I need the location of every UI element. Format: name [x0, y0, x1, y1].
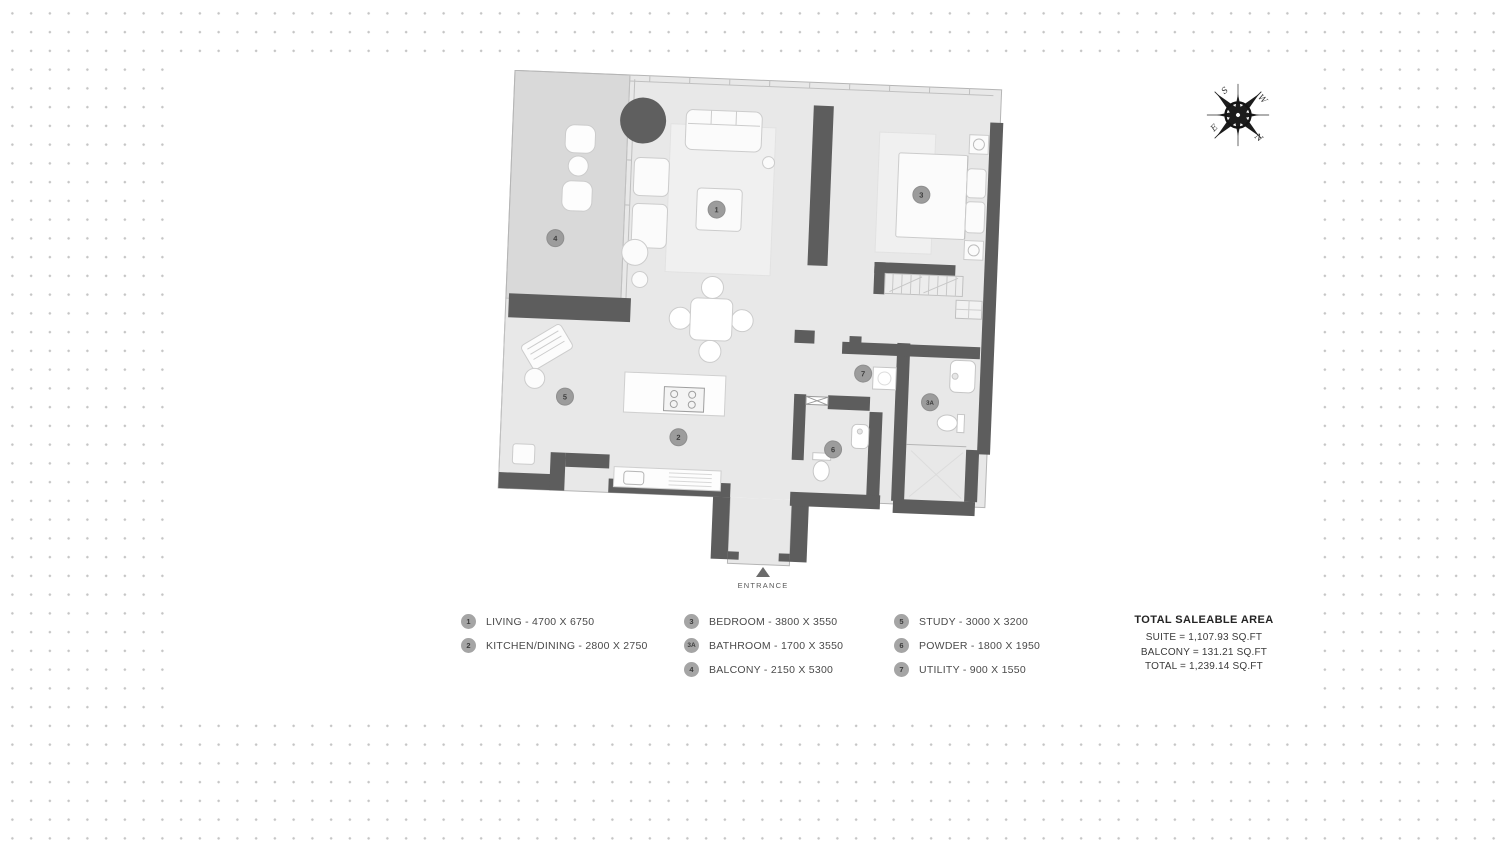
stool-icon	[524, 368, 545, 389]
room-badge-bathroom: 3A	[921, 393, 939, 411]
nightstand-icon	[969, 135, 989, 155]
toilet-tank-icon	[957, 414, 965, 432]
svg-text:1: 1	[714, 205, 719, 214]
legend-label: KITCHEN/DINING - 2800 X 2750	[486, 640, 648, 652]
dining-chair-icon	[669, 307, 692, 330]
legend-label: BATHROOM - 1700 X 3550	[709, 640, 843, 652]
stool-icon	[631, 271, 648, 288]
legend-item-study: 5 STUDY - 3000 X 3200	[894, 614, 1040, 629]
nightstand-icon	[964, 241, 984, 261]
wall-entrance-right	[790, 500, 809, 563]
compass-n-label: N	[1251, 131, 1264, 144]
dining-table-icon	[689, 298, 733, 342]
legend-column-3: 5 STUDY - 3000 X 3200 6 POWDER - 1800 X …	[894, 614, 1040, 677]
legend-item-living: 1 LIVING - 4700 X 6750	[461, 614, 648, 629]
washer-icon	[873, 367, 897, 390]
compass-s-label: S	[1220, 85, 1231, 97]
room-badge-balcony: 4	[546, 229, 564, 247]
room-badge-living: 1	[708, 201, 726, 219]
toilet-icon	[813, 461, 830, 482]
armchair-icon	[633, 157, 669, 196]
compass-rose: S W E N	[1203, 80, 1273, 150]
side-table-icon	[621, 239, 648, 266]
svg-text:3: 3	[919, 190, 924, 199]
legend-label: BEDROOM - 3800 X 3550	[709, 616, 837, 628]
plant-icon	[762, 156, 774, 168]
legend-label: BALCONY - 2150 X 5300	[709, 664, 833, 676]
legend-badge: 7	[894, 662, 909, 677]
legend-item-bathroom: 3A BATHROOM - 1700 X 3550	[684, 638, 843, 653]
room-badge-kitchen: 2	[670, 428, 688, 446]
compass-e-label: E	[1208, 122, 1221, 135]
legend-badge: 4	[684, 662, 699, 677]
basin-icon	[851, 424, 869, 449]
legend-column-1: 1 LIVING - 4700 X 6750 2 KITCHEN/DINING …	[461, 614, 648, 653]
room-badge-study: 5	[556, 388, 574, 406]
svg-text:3A: 3A	[926, 400, 935, 407]
room-badge-utility: 7	[854, 365, 872, 383]
totals-suite: SUITE = 1,107.93 SQ.FT	[1104, 631, 1304, 646]
wall-balcony-end	[508, 293, 631, 322]
legend-label: LIVING - 4700 X 6750	[486, 616, 594, 628]
legend-badge: 5	[894, 614, 909, 629]
legend-item-utility: 7 UTILITY - 900 X 1550	[894, 662, 1040, 677]
room-badge-bedroom: 3	[913, 186, 931, 204]
bed-icon	[896, 153, 968, 240]
legend-column-2: 3 BEDROOM - 3800 X 3550 3A BATHROOM - 17…	[684, 614, 843, 677]
chair-icon	[512, 444, 535, 465]
legend-item-powder: 6 POWDER - 1800 X 1950	[894, 638, 1040, 653]
dining-chair-icon	[698, 340, 721, 363]
wall-entrance-left	[711, 497, 730, 560]
entrance-label: ENTRANCE	[723, 581, 803, 590]
pillow-icon	[965, 202, 985, 234]
sofa-icon	[685, 109, 763, 152]
toilet-icon	[937, 415, 958, 432]
balcony-table-icon	[568, 156, 589, 177]
total-saleable-area-block: TOTAL SALEABLE AREA SUITE = 1,107.93 SQ.…	[1104, 614, 1304, 675]
pillow-icon	[966, 169, 986, 199]
legend-label: POWDER - 1800 X 1950	[919, 640, 1040, 652]
legend-item-bedroom: 3 BEDROOM - 3800 X 3550	[684, 614, 843, 629]
legend-label: STUDY - 3000 X 3200	[919, 616, 1028, 628]
svg-text:6: 6	[831, 445, 836, 454]
dining-chair-icon	[701, 276, 724, 299]
legend-badge: 3	[684, 614, 699, 629]
legend-item-balcony: 4 BALCONY - 2150 X 5300	[684, 662, 843, 677]
room-badge-powder: 6	[824, 441, 842, 459]
compass-w-label: W	[1255, 93, 1269, 107]
legend-badge: 1	[461, 614, 476, 629]
svg-text:5: 5	[563, 392, 568, 401]
totals-total: TOTAL = 1,239.14 SQ.FT	[1104, 660, 1304, 675]
floor-plan: 1 2 3 3A 4 5 6	[490, 70, 1010, 605]
compass-star-icon	[1203, 80, 1273, 150]
legend-badge: 3A	[684, 638, 699, 653]
svg-text:2: 2	[676, 433, 681, 442]
legend-item-kitchen-dining: 2 KITCHEN/DINING - 2800 X 2750	[461, 638, 648, 653]
legend-badge: 6	[894, 638, 909, 653]
legend-badge: 2	[461, 638, 476, 653]
stove-icon	[663, 387, 704, 413]
balcony-chair-icon	[565, 124, 596, 153]
entrance-arrow-icon	[756, 567, 770, 577]
utility-fixtures	[873, 367, 897, 390]
totals-balcony: BALCONY = 131.21 SQ.FT	[1104, 646, 1304, 661]
balcony-chair-icon	[561, 180, 592, 211]
totals-title: TOTAL SALEABLE AREA	[1104, 614, 1304, 626]
dining-chair-icon	[731, 309, 754, 332]
legend-label: UTILITY - 900 X 1550	[919, 664, 1026, 676]
svg-text:7: 7	[861, 369, 866, 378]
